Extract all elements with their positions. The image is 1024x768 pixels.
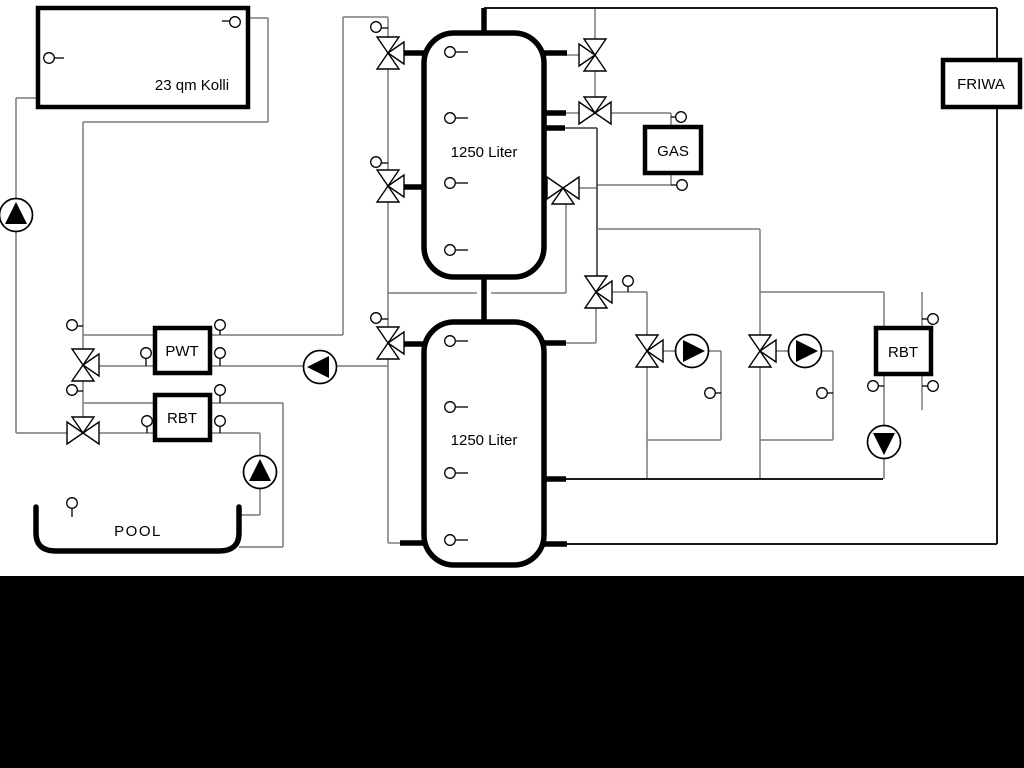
tank2-label: 1250 Liter (451, 432, 518, 449)
pwt-heat-exchanger: PWT (155, 328, 210, 373)
rbt-left-label: RBT (167, 410, 197, 427)
schematic-canvas: 1250 Liter 1250 Liter 23 qm Kolli PWT RB… (0, 0, 1024, 768)
pump-pool (244, 456, 277, 489)
gas-label: GAS (657, 143, 689, 160)
buffer-tank-1: 1250 Liter (424, 33, 544, 277)
pump-charge (304, 351, 337, 384)
pwt-label: PWT (165, 343, 198, 360)
hydraulic-schematic: 1250 Liter 1250 Liter 23 qm Kolli PWT RB… (0, 0, 1024, 768)
buffer-tank-2: 1250 Liter (424, 322, 544, 565)
bottom-black-band (0, 576, 1024, 768)
rbt-right-heat-exchanger: RBT (876, 328, 931, 374)
solar-collector: 23 qm Kolli (38, 8, 248, 107)
pump-rbt-right-return (868, 426, 901, 459)
pump-collector (0, 199, 33, 232)
tank1-label: 1250 Liter (451, 144, 518, 161)
friwa-station: FRIWA (943, 60, 1020, 107)
pool-label: POOL (114, 523, 162, 540)
pump-heating-circuit-2 (789, 335, 822, 368)
rbt-left-heat-exchanger: RBT (155, 395, 210, 440)
pump-heating-circuit-1 (676, 335, 709, 368)
gas-boiler: GAS (645, 127, 701, 173)
rbt-right-label: RBT (888, 344, 918, 361)
friwa-label: FRIWA (957, 76, 1005, 93)
collector-label: 23 qm Kolli (155, 77, 229, 94)
